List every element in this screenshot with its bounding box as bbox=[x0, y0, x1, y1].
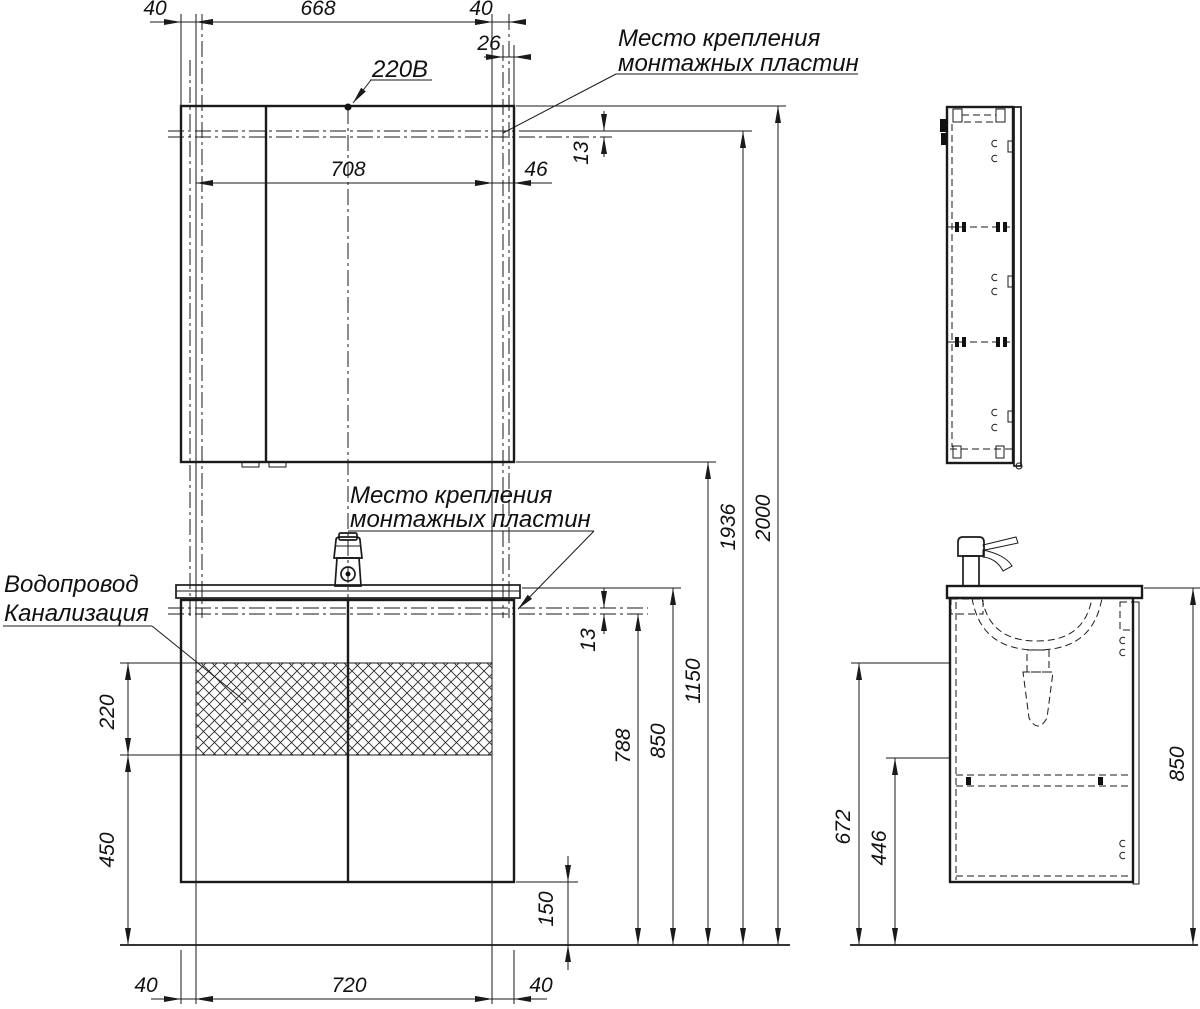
sewerage-label: Канализация bbox=[4, 600, 149, 627]
dim-total-height: 2000 bbox=[752, 494, 775, 542]
dim-mirror-plate-height: 13 bbox=[570, 141, 593, 165]
dim-basin-underside-level: 672 bbox=[832, 809, 855, 844]
drawing-page: 40 668 40 26 708 46 13 2000 1936 1150 85… bbox=[0, 0, 1200, 1009]
siphon-trap bbox=[1023, 672, 1053, 726]
faucet-side bbox=[958, 537, 1018, 586]
dim-plate-offset: 26 bbox=[476, 32, 501, 55]
dim-mirror-edge-gap: 46 bbox=[524, 158, 548, 181]
power-connection-point bbox=[345, 104, 352, 111]
faucet-lever bbox=[983, 537, 1018, 550]
hinge-icon bbox=[941, 133, 947, 145]
mounting-plate bbox=[1120, 602, 1133, 630]
construction-lines bbox=[120, 14, 1200, 1004]
dimension-annotations: 40 668 40 26 708 46 13 2000 1936 1150 85… bbox=[96, 0, 1193, 999]
mirror-cabinet-side-view bbox=[940, 107, 1022, 469]
dim-service-zone-height: 220 bbox=[96, 694, 119, 730]
dim-zone-to-floor: 450 bbox=[96, 832, 119, 867]
dim-mirror-mount-span: 668 bbox=[300, 0, 335, 20]
hinge-icon bbox=[940, 119, 948, 132]
sink-bowl-outline bbox=[972, 598, 1102, 650]
dim-side-washbasin-height: 850 bbox=[1166, 746, 1189, 781]
mirror-door-edge bbox=[1014, 107, 1021, 466]
dim-mirror-bottom-level: 1150 bbox=[682, 658, 705, 703]
dim-vanity-right-margin: 40 bbox=[529, 974, 553, 997]
shelf-clip-icons bbox=[992, 140, 997, 430]
water-supply-label: Водопровод bbox=[4, 571, 138, 598]
dim-washbasin-top-level: 850 bbox=[647, 723, 670, 758]
mounting-plates-mid-label-line2: монтажных пластин bbox=[350, 506, 591, 533]
dim-mirror-inner-span: 708 bbox=[330, 158, 365, 181]
dim-mirror-mount-level: 1936 bbox=[717, 503, 740, 550]
power-supply-label: 220В bbox=[371, 56, 428, 83]
dim-vanity-plate-height: 13 bbox=[577, 628, 600, 652]
faucet-spout bbox=[983, 550, 1012, 571]
vanity-front-view bbox=[176, 585, 520, 882]
technical-drawing: 40 668 40 26 708 46 13 2000 1936 1150 85… bbox=[0, 0, 1200, 1009]
hatch-service-zone bbox=[196, 663, 492, 755]
cabinet-clip-icons bbox=[1120, 637, 1125, 858]
dim-mirror-left-margin: 40 bbox=[143, 0, 167, 20]
dim-floor-clearance: 150 bbox=[535, 891, 558, 926]
dim-vanity-left-margin: 40 bbox=[134, 974, 158, 997]
washbasin-side bbox=[947, 586, 1142, 598]
mounting-plates-top-label-line1: Место крепления bbox=[618, 25, 820, 52]
drain-pipe bbox=[1027, 650, 1049, 672]
mounting-plates-top-label-line2: монтажных пластин bbox=[618, 50, 859, 77]
dim-mirror-right-margin: 40 bbox=[469, 0, 493, 20]
mounting-plates-mid-label-line1: Место крепления bbox=[350, 482, 552, 509]
vanity-side-view bbox=[947, 586, 1142, 884]
dim-vanity-mount-span: 720 bbox=[331, 974, 366, 997]
dim-vanity-mount-level: 788 bbox=[612, 728, 635, 763]
dim-drawer-level: 446 bbox=[868, 830, 891, 865]
